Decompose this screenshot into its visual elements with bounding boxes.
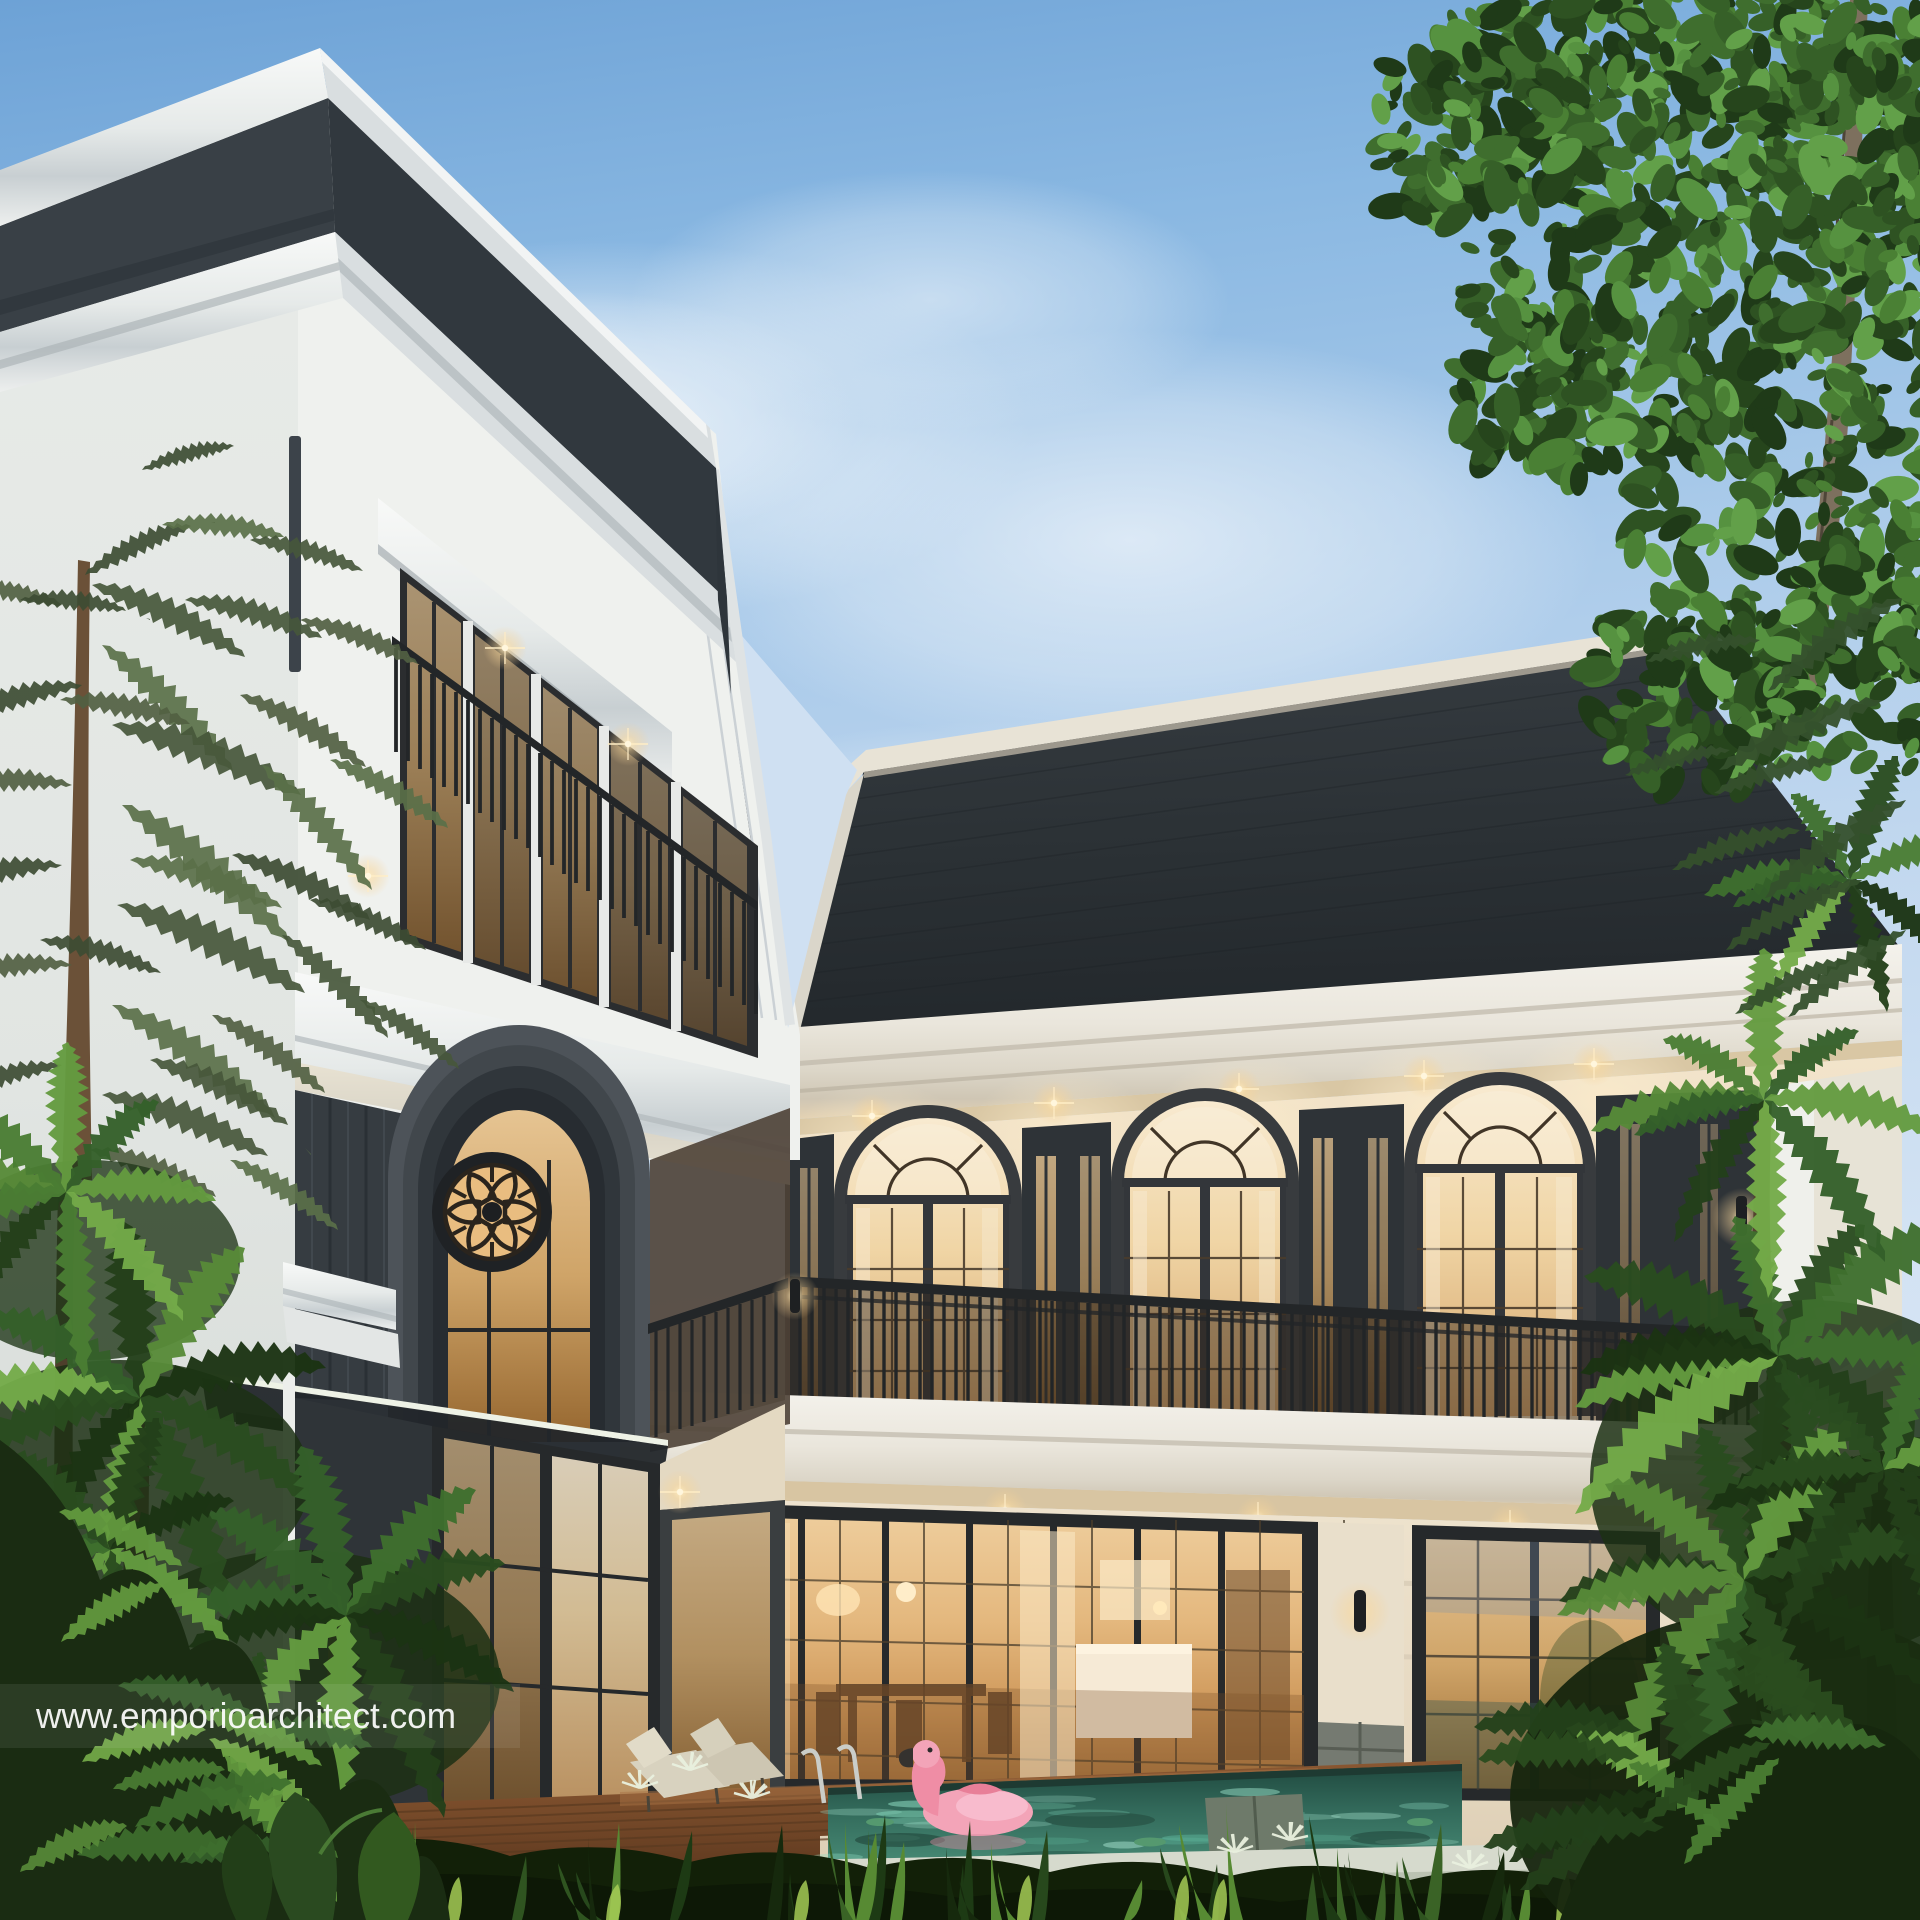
svg-text:www.emporioarchitect.com: www.emporioarchitect.com xyxy=(35,1695,456,1736)
